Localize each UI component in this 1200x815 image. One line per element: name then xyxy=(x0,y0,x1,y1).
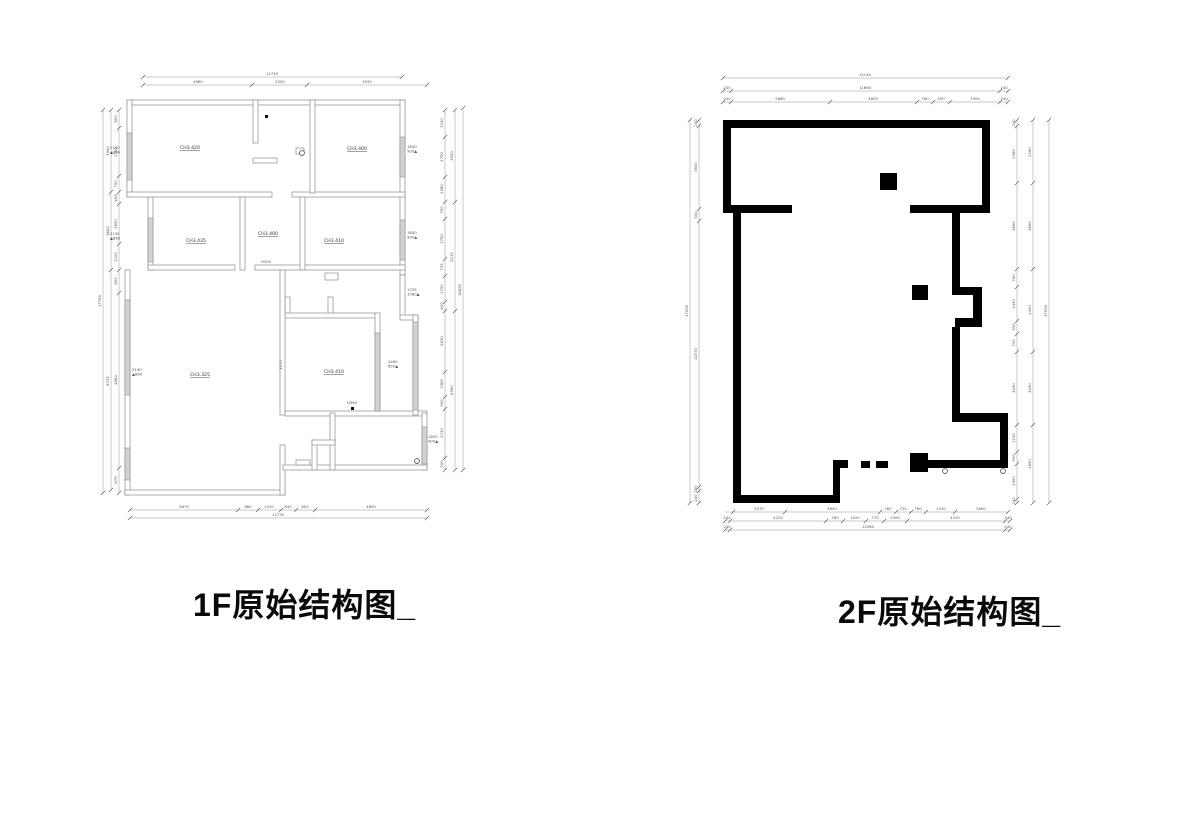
door-circle xyxy=(415,459,420,464)
wall-segment xyxy=(400,275,405,317)
dimension-label: 4850 xyxy=(868,96,878,101)
plan-1f-title: 1F原始结构图_ xyxy=(193,580,416,626)
window-sill-label: ▲860 xyxy=(110,236,121,241)
dimension-label: 500 xyxy=(439,460,444,468)
wall-segment xyxy=(283,465,427,470)
dimension-label: 6560 xyxy=(449,385,454,395)
dimension-label: 2860 xyxy=(775,96,785,101)
wall-segment xyxy=(296,460,310,465)
dimension-label: 11745 xyxy=(266,71,279,76)
wall-segment xyxy=(880,173,897,190)
dimension-label: 640 xyxy=(284,504,292,509)
plan-2f-title: 2F原始结构图_ xyxy=(838,587,1061,633)
dimension-label: 2180 xyxy=(1027,147,1032,157)
dimension-label: 240 xyxy=(1000,85,1008,90)
dimension-label: 240 xyxy=(693,119,698,127)
wall-segment xyxy=(833,460,848,468)
dimension-label: 2600 xyxy=(976,506,986,511)
dimension-label: 1190 xyxy=(439,118,444,128)
wall-segment xyxy=(723,120,731,213)
window-segment xyxy=(422,427,427,464)
window-segment xyxy=(400,220,405,260)
wall-segment xyxy=(861,461,870,468)
dimension-label: 1080 xyxy=(439,184,444,194)
dimension-label: 1750 xyxy=(439,152,444,162)
floor-plan-1f-drawing: 1174549602250393546798801010640805485012… xyxy=(95,60,475,535)
dimension-label: 1430 xyxy=(936,506,946,511)
wall-segment xyxy=(127,100,405,105)
dimension-label: 17590 xyxy=(684,304,689,317)
wall-segment xyxy=(125,490,285,495)
wall-segment xyxy=(292,192,405,197)
dimension-label: 4310 xyxy=(950,515,960,520)
dimension-label: 240 xyxy=(693,494,698,502)
dimension-label: 730 xyxy=(1011,339,1016,347)
dimension-label: 5215 xyxy=(449,252,454,262)
room-height-label: CH3.410 xyxy=(324,238,344,244)
dimension-label: 4660 xyxy=(113,375,118,385)
dimension-label: 500 xyxy=(439,399,444,407)
dimension-label: 240 xyxy=(723,85,731,90)
dimension-label: 240 xyxy=(1011,119,1016,127)
wall-segment xyxy=(280,270,285,415)
wall-segment xyxy=(310,100,315,193)
dimension-label: 3600 xyxy=(693,162,698,172)
room-height-label: CH3.400 xyxy=(347,146,367,152)
dimension-label: 4850 xyxy=(366,504,376,509)
wall-segment xyxy=(973,295,982,327)
window-sill-label: 900▲ xyxy=(407,235,417,240)
dimension-label: 1750 xyxy=(439,234,444,244)
dimension-label: 240 xyxy=(1004,524,1012,529)
window-segment xyxy=(400,137,405,177)
room-height-label: CH3.400 xyxy=(258,231,278,237)
wall-segment xyxy=(723,205,792,213)
dimension-label: 1020 xyxy=(850,515,860,520)
window-segment xyxy=(127,133,132,180)
dimension-label: 1430 xyxy=(1027,305,1032,315)
dimension-label: 17790 xyxy=(97,294,102,307)
column-dot xyxy=(351,407,354,410)
dimension-label: 2130 xyxy=(439,428,444,438)
dimension-label: 2250 xyxy=(275,79,285,84)
dimension-label: 805 xyxy=(301,504,309,509)
wall-segment xyxy=(285,313,377,318)
dimension-label: 2570 xyxy=(754,506,764,511)
window-sill-label: 1080▲ xyxy=(407,292,420,297)
dimension-label: 3600 xyxy=(1011,221,1016,231)
window-segment xyxy=(125,448,130,480)
dimension-label: 760 xyxy=(831,515,839,520)
dimension-label: 17590 xyxy=(1043,304,1048,317)
dimension-label: 11660 xyxy=(859,85,872,90)
dimension-label: 1010 xyxy=(264,504,274,509)
wall-segment xyxy=(255,265,405,270)
dimension-label: 4960 xyxy=(193,79,203,84)
dimension-label: 3300 xyxy=(970,96,980,101)
door-circle xyxy=(943,469,948,474)
dimension-label: 880 xyxy=(244,504,252,509)
dimension-label: 3935 xyxy=(362,79,372,84)
wall-segment xyxy=(876,461,888,468)
wall-segment xyxy=(910,453,928,472)
dimension-label: 1150 xyxy=(439,284,444,294)
dimension-label: 1100 xyxy=(113,252,118,262)
wall-segment xyxy=(240,197,245,270)
wall-segment xyxy=(910,205,990,213)
dimension-label: 12140 xyxy=(859,72,872,77)
wall-segment xyxy=(253,100,258,143)
wall-segment xyxy=(723,120,990,128)
wall-segment xyxy=(952,413,1008,422)
room-height-label: CH3.410 xyxy=(324,369,344,375)
wall-segment xyxy=(312,440,335,445)
dimension-label: 240 xyxy=(1011,497,1016,505)
window-sill-label: 900▲ xyxy=(407,149,417,154)
window-sill-label: 900▲ xyxy=(428,439,438,444)
room-height-label: CH3.435 xyxy=(186,238,206,244)
dimension-label: 240 xyxy=(1000,96,1008,101)
dimension-label: 760 xyxy=(884,506,892,511)
dimension-label: 493 xyxy=(113,194,118,202)
dimension-label: 3600 xyxy=(1027,221,1032,231)
wall-segment xyxy=(733,495,840,503)
room-height-label: CH3.420 xyxy=(180,145,200,151)
dimension-label: 4650 xyxy=(827,506,837,511)
dimension-label: 3030 xyxy=(1027,383,1032,393)
dimension-label: 1130 xyxy=(1011,433,1016,443)
dimension-label: 500 xyxy=(1011,454,1016,462)
room-height-label: CH3.325 xyxy=(190,372,210,378)
window-sill-label: ▲860 xyxy=(132,372,143,377)
wall-segment xyxy=(127,192,272,197)
dimension-label: 1450 xyxy=(1011,476,1016,486)
dimension-label: 2380 xyxy=(1011,149,1016,159)
floor-plan-2f-drawing: 1214024011660240240286048507604503300240… xyxy=(680,70,1065,540)
dimension-label: 16655 xyxy=(457,283,462,296)
dimension-label: 740 xyxy=(1011,274,1016,282)
dimension-label: 240 xyxy=(723,96,731,101)
dimension-label: 750 xyxy=(439,206,444,214)
wall-segment xyxy=(300,197,305,270)
dimension-label: H300 xyxy=(261,259,272,264)
dimension-label: 770 xyxy=(871,515,879,520)
dimension-label: 11570 xyxy=(693,347,698,360)
dimension-label: 12735 xyxy=(272,512,285,517)
door-circle xyxy=(1001,469,1006,474)
wall-segment xyxy=(952,327,960,422)
dimension-label: 540 xyxy=(693,211,698,219)
dimension-label: 730 xyxy=(899,506,907,511)
wall-segment xyxy=(982,120,990,213)
dimension-label: 450 xyxy=(937,96,945,101)
dimension-label: 750 xyxy=(113,180,118,188)
dimension-label: H360 xyxy=(347,400,358,405)
dimension-label: 1650 xyxy=(113,219,118,229)
wall-segment xyxy=(253,158,277,163)
dimension-label: 4679 xyxy=(179,504,189,509)
window-sill-label: ▲860 xyxy=(110,150,121,155)
dimension-label: 760 xyxy=(914,506,922,511)
dimension-label: 1070 xyxy=(278,360,283,370)
wall-segment xyxy=(733,213,741,503)
dimension-label: 600 xyxy=(113,277,118,285)
wall-segment xyxy=(912,285,928,300)
door-circle xyxy=(300,151,305,156)
window-segment xyxy=(125,300,130,395)
window-segment xyxy=(413,322,418,410)
dimension-label: 1065 xyxy=(439,379,444,389)
dimension-label: 240 xyxy=(723,515,731,520)
dimension-label: 9735 xyxy=(105,376,110,386)
wall-segment xyxy=(148,265,235,270)
dimension-label: 400 xyxy=(439,302,444,310)
dimension-label: 240 xyxy=(1004,515,1012,520)
dimension-label: 735 xyxy=(439,263,444,271)
dimension-label: 3030 xyxy=(1011,383,1016,393)
dimension-label: 1650 xyxy=(1027,459,1032,469)
dimension-label: 530 xyxy=(1011,323,1016,331)
dimension-label: 1430 xyxy=(1011,299,1016,309)
dimension-label: 12560 xyxy=(862,524,875,529)
window-segment xyxy=(148,218,153,262)
dimension-label: 240 xyxy=(723,524,731,529)
window-segment xyxy=(375,333,380,411)
dimension-label: 800 xyxy=(113,115,118,123)
window-sill-label: 650▲ xyxy=(388,364,398,369)
wall-segment xyxy=(285,411,427,416)
wall-segment xyxy=(952,213,960,295)
dimension-label: 3930 xyxy=(449,151,454,161)
dimension-label: 160 xyxy=(693,485,698,493)
fixture xyxy=(325,273,338,280)
dimension-label: 2630 xyxy=(439,336,444,346)
wall-segment xyxy=(833,467,840,503)
dimension-label: 4220 xyxy=(773,515,783,520)
dimension-label: 675 xyxy=(113,476,118,484)
column-dot xyxy=(265,115,268,118)
dimension-label: 1000 xyxy=(890,515,900,520)
dimension-label: 760 xyxy=(921,96,929,101)
